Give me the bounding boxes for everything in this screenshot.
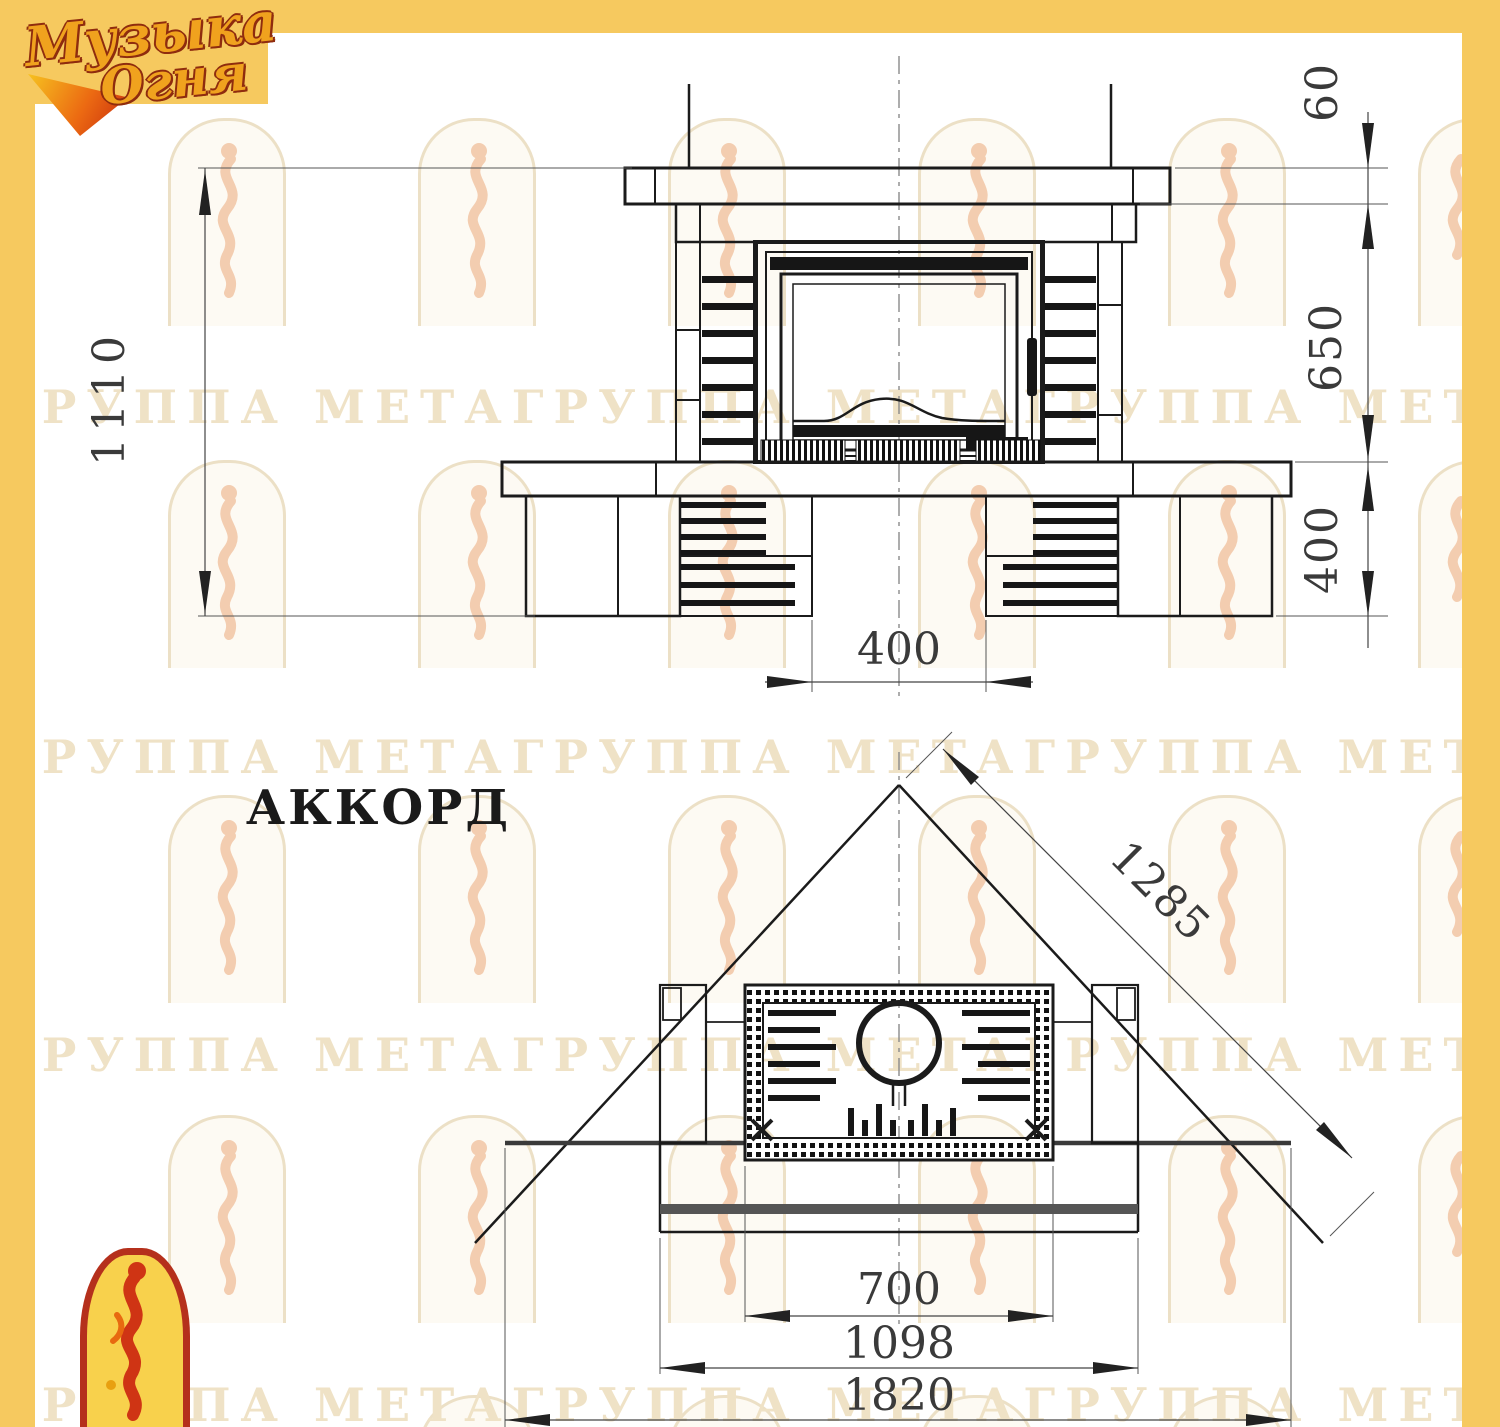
catalog-page: ГРУППА МЕТАГРУППА МЕТАГРУППА МЕТАГРУППА … <box>0 0 1500 1427</box>
dim-firebox-width: 700 <box>857 1264 941 1315</box>
dim-total-height: 1110 <box>84 330 135 466</box>
firebox-door-handle <box>1027 338 1037 396</box>
front-view-drawing: 1110 60 650 400 400 <box>84 56 1388 700</box>
dim-wall-length: 1285 <box>1100 831 1221 952</box>
plan-view-drawing: 1285 <box>246 732 1374 1427</box>
dim-niche-width: 400 <box>857 624 941 675</box>
dim-mantel-thickness: 60 <box>1297 62 1348 122</box>
dim-base-height: 400 <box>1297 504 1348 594</box>
dim-opening-height: 650 <box>1301 302 1352 392</box>
dim-overall-width: 1820 <box>843 1370 955 1421</box>
dim-body-width: 1098 <box>843 1318 955 1369</box>
model-title: АККОРД <box>246 780 511 836</box>
fireplace-technical-drawing: 1110 60 650 400 400 <box>0 0 1500 1427</box>
